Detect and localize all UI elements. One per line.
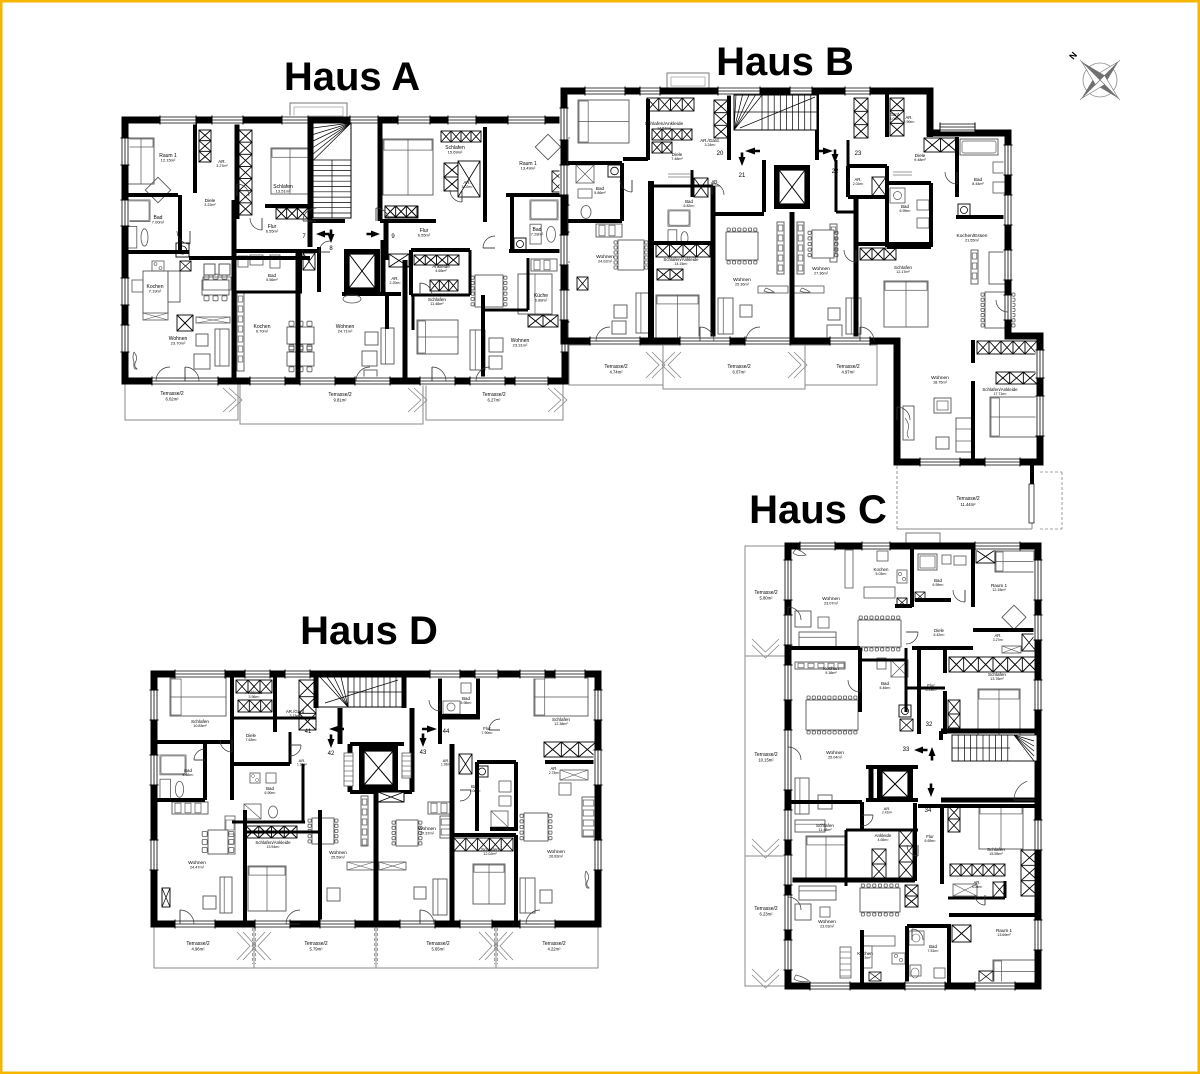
svg-text:10.83m²: 10.83m² — [193, 724, 207, 728]
svg-text:12.15m²: 12.15m² — [992, 588, 1006, 592]
svg-text:5.56m²: 5.56m² — [266, 278, 278, 282]
svg-text:23.07m²: 23.07m² — [824, 600, 839, 605]
svg-text:22: 22 — [832, 169, 839, 175]
svg-text:32: 32 — [926, 722, 933, 728]
svg-text:25.36m²: 25.36m² — [735, 281, 750, 286]
svg-text:7.00m²: 7.00m² — [152, 220, 165, 225]
svg-text:6.55m²: 6.55m² — [418, 233, 431, 238]
svg-text:3.22m²: 3.22m² — [204, 203, 216, 207]
svg-text:4.74m²: 4.74m² — [609, 370, 623, 375]
svg-text:3.27m²: 3.27m² — [993, 638, 1004, 642]
svg-text:7.28m²: 7.28m² — [531, 232, 544, 237]
svg-text:13.94m²: 13.94m² — [267, 845, 281, 849]
svg-text:15.55m²: 15.55m² — [989, 852, 1003, 856]
svg-text:2.90m²: 2.90m² — [904, 120, 916, 124]
svg-text:4.65m²: 4.65m² — [878, 838, 890, 842]
svg-text:5.68m²: 5.68m² — [183, 773, 195, 777]
svg-text:1.93m²: 1.93m² — [441, 763, 451, 767]
svg-text:6.02m²: 6.02m² — [165, 397, 179, 402]
svg-text:42: 42 — [328, 751, 335, 757]
svg-text:Haus D: Haus D — [300, 609, 438, 653]
svg-text:3.27m²: 3.27m² — [216, 164, 228, 168]
svg-text:5.86m²: 5.86m² — [594, 191, 606, 195]
svg-text:6.23m²: 6.23m² — [926, 688, 938, 692]
svg-text:7.63m²: 7.63m² — [246, 738, 258, 742]
svg-text:24.71m²: 24.71m² — [338, 329, 353, 334]
svg-text:3.13m²: 3.13m² — [290, 714, 302, 718]
svg-text:23.03m²: 23.03m² — [820, 923, 835, 928]
svg-text:13.49m²: 13.49m² — [521, 166, 536, 171]
svg-text:23.31m²: 23.31m² — [513, 343, 528, 348]
svg-text:13.51m²: 13.51m² — [276, 189, 291, 194]
svg-text:3.24m²: 3.24m² — [705, 143, 717, 147]
svg-text:11.44m²: 11.44m² — [960, 502, 976, 507]
svg-text:9.81m²: 9.81m² — [333, 398, 347, 403]
svg-text:7.48m²: 7.48m² — [671, 157, 683, 161]
svg-text:41: 41 — [305, 729, 312, 735]
svg-text:13.76m²: 13.76m² — [990, 677, 1004, 681]
svg-text:7.57m²: 7.57m² — [859, 956, 871, 960]
svg-text:15.69m²: 15.69m² — [448, 150, 463, 155]
svg-text:2.01m²: 2.01m² — [853, 182, 864, 186]
svg-text:6.90m²: 6.90m² — [265, 791, 277, 795]
svg-text:17.71m²: 17.71m² — [994, 392, 1008, 396]
svg-text:20: 20 — [717, 151, 724, 157]
svg-text:5.46m²: 5.46m² — [880, 686, 892, 690]
svg-text:6.99m²: 6.99m² — [933, 583, 945, 587]
svg-text:27.36m²: 27.36m² — [814, 270, 829, 275]
svg-text:27.37m²: 27.37m² — [420, 830, 435, 835]
svg-text:1.97m²: 1.97m² — [297, 763, 307, 767]
svg-text:25.04m²: 25.04m² — [828, 754, 843, 759]
svg-text:7.06m²: 7.06m² — [470, 789, 482, 793]
svg-text:12.17m²: 12.17m² — [896, 270, 910, 274]
svg-text:33: 33 — [903, 747, 910, 753]
svg-text:23.70m²: 23.70m² — [171, 341, 186, 346]
svg-text:2.20m²: 2.20m² — [390, 281, 402, 285]
svg-text:14.57m²: 14.57m² — [657, 125, 672, 130]
svg-text:1.97m²: 1.97m² — [710, 184, 721, 188]
svg-text:12.15m²: 12.15m² — [161, 158, 176, 163]
svg-text:10.15m²: 10.15m² — [758, 758, 774, 763]
svg-text:6.82m²: 6.82m² — [684, 204, 696, 208]
svg-text:4.97m²: 4.97m² — [841, 370, 855, 375]
svg-text:4.65m²: 4.65m² — [435, 269, 447, 273]
svg-text:34: 34 — [925, 808, 932, 814]
svg-text:4.22m²: 4.22m² — [547, 947, 561, 952]
svg-text:9.48m²: 9.48m² — [914, 158, 926, 162]
svg-text:12.02m²: 12.02m² — [483, 852, 497, 856]
svg-text:7.90m²: 7.90m² — [482, 731, 494, 735]
svg-text:6.55m²: 6.55m² — [266, 229, 279, 234]
svg-text:6.42m²: 6.42m² — [934, 633, 946, 637]
svg-text:25.59m²: 25.59m² — [331, 854, 346, 859]
svg-text:18.75m²: 18.75m² — [933, 379, 948, 384]
svg-text:3.96m²: 3.96m² — [249, 695, 261, 699]
svg-text:Haus B: Haus B — [716, 40, 854, 84]
svg-text:6.27m²: 6.27m² — [487, 398, 501, 403]
svg-text:7.51m²: 7.51m² — [928, 949, 940, 953]
svg-text:3.02m²: 3.02m² — [462, 185, 474, 189]
svg-text:2.41m²: 2.41m² — [882, 811, 892, 815]
svg-text:43: 43 — [420, 750, 427, 756]
svg-text:26.83m²: 26.83m² — [549, 853, 564, 858]
svg-text:5.03m²: 5.03m² — [876, 572, 888, 576]
svg-text:23: 23 — [855, 151, 862, 157]
svg-text:3.08m²: 3.08m² — [890, 117, 902, 121]
svg-text:2.73m²: 2.73m² — [549, 771, 560, 775]
svg-text:5.98m²: 5.98m² — [461, 701, 473, 705]
svg-text:21.55m²: 21.55m² — [965, 237, 980, 242]
svg-text:6.69m²: 6.69m² — [925, 839, 937, 843]
svg-text:12.38m²: 12.38m² — [554, 722, 568, 726]
svg-text:24.02m²: 24.02m² — [598, 258, 613, 263]
svg-text:11.48m²: 11.48m² — [430, 302, 444, 306]
svg-text:Haus A: Haus A — [284, 55, 420, 99]
svg-text:5.65m²: 5.65m² — [431, 947, 445, 952]
svg-text:9.38m²: 9.38m² — [825, 671, 837, 675]
svg-text:24.47m²: 24.47m² — [190, 864, 205, 869]
svg-text:3.04m²: 3.04m² — [972, 885, 983, 889]
svg-text:5.80m²: 5.80m² — [759, 596, 773, 601]
svg-text:8.44m²: 8.44m² — [972, 182, 984, 186]
svg-text:6.07m²: 6.07m² — [732, 370, 746, 375]
svg-text:6.99m²: 6.99m² — [900, 209, 912, 213]
svg-text:21: 21 — [739, 173, 746, 179]
svg-text:5.79m²: 5.79m² — [309, 947, 323, 952]
svg-text:7.19m²: 7.19m² — [149, 289, 162, 294]
svg-text:Haus C: Haus C — [749, 488, 887, 532]
svg-text:9.70m²: 9.70m² — [256, 329, 269, 334]
svg-text:44: 44 — [443, 729, 450, 735]
svg-text:6.88m²: 6.88m² — [535, 298, 548, 303]
svg-text:6.23m²: 6.23m² — [759, 912, 773, 917]
svg-text:4.96m²: 4.96m² — [191, 947, 205, 952]
svg-text:14.15m²: 14.15m² — [675, 262, 689, 266]
svg-text:11.48m²: 11.48m² — [818, 828, 832, 832]
svg-text:13.69m²: 13.69m² — [997, 933, 1011, 937]
